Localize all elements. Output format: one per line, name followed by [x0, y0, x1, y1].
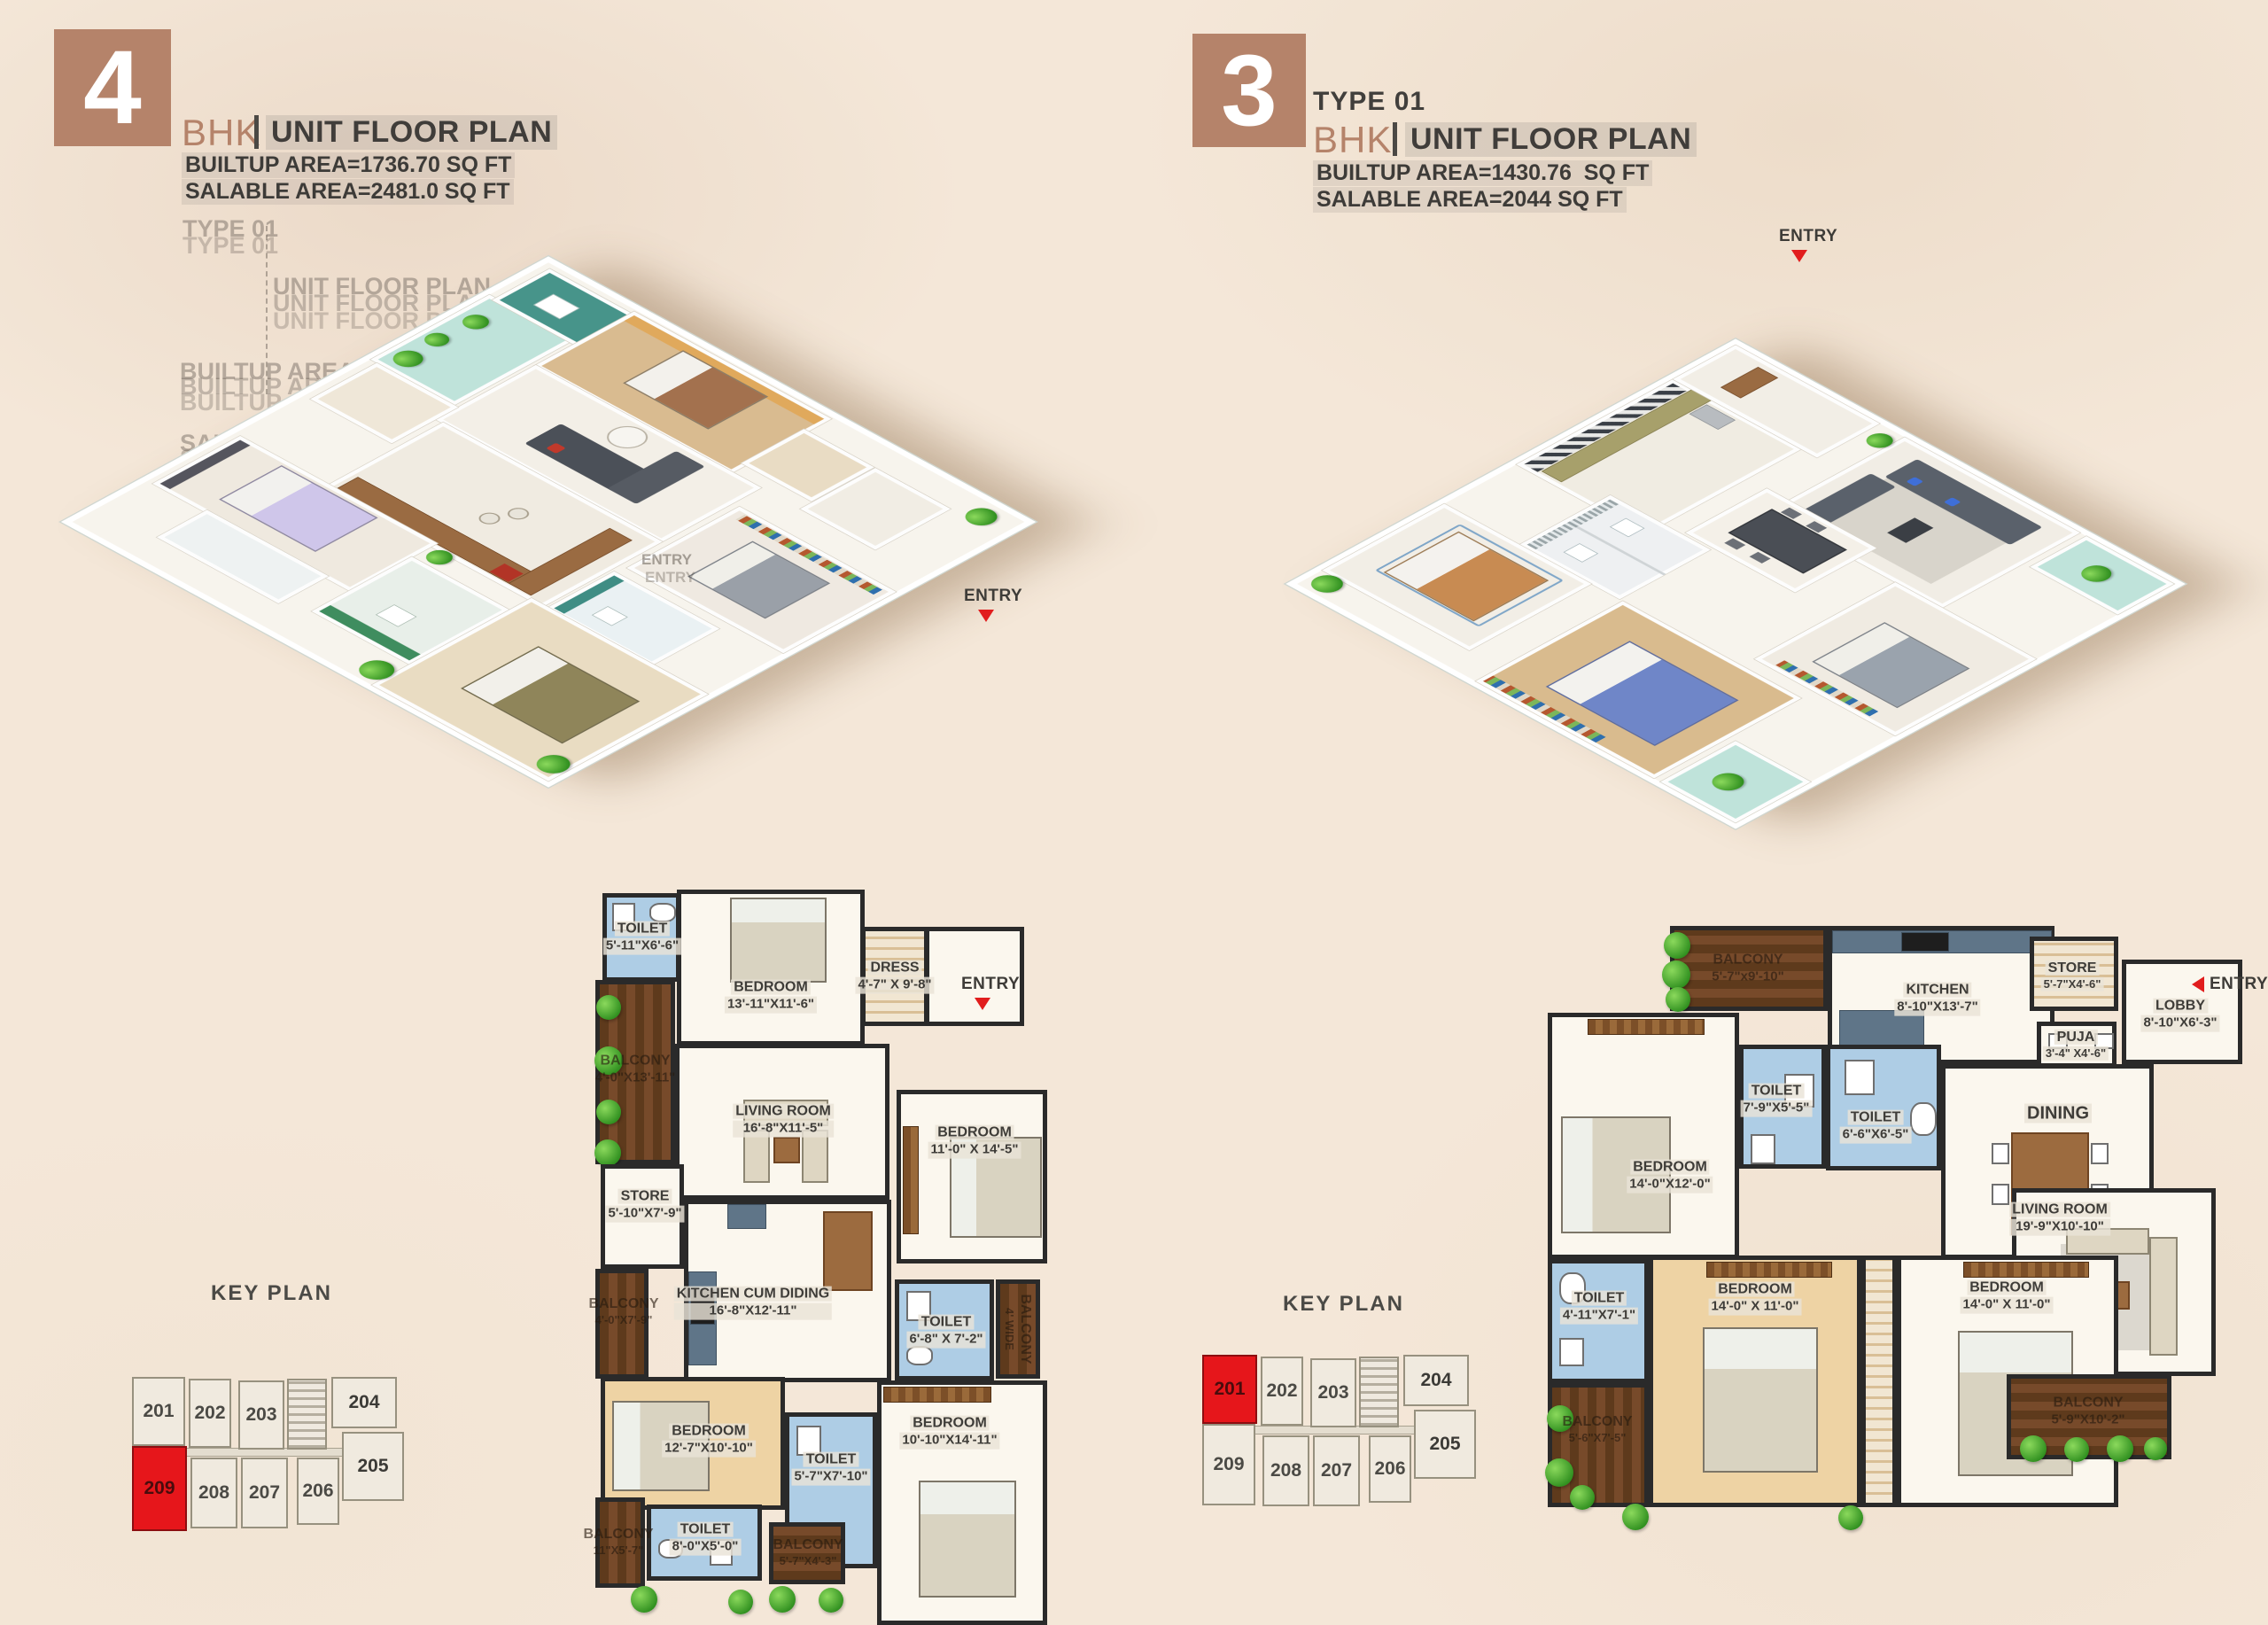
wc [592, 606, 628, 626]
keyplan-unit-203: 203 [1310, 1358, 1356, 1427]
plant-icon [769, 1586, 796, 1613]
room-name: TOILET [1848, 1110, 1904, 1125]
bar-stool [475, 510, 505, 526]
room-label: LIVING ROOM19'-9"X10'-10" [2009, 1201, 2110, 1236]
room-dims: 4'-7" X 9'-8" [855, 977, 934, 994]
room-dims: 5'-7"X4'-6" [2041, 977, 2104, 991]
wardrobe [1963, 1262, 2089, 1278]
room-dims: 12'-7"X10'-10" [662, 1441, 756, 1458]
kitchen-counter [1542, 389, 1713, 483]
plant-icon [1545, 1458, 1573, 1487]
room-bedroom [677, 890, 865, 1046]
room-label: TOILET6'-8" X 7'-2" [906, 1314, 985, 1349]
room-dims: 14'-0"X12'-0" [1627, 1177, 1713, 1193]
unit-number: 204 [1420, 1370, 1451, 1391]
plant-icon [2107, 1435, 2133, 1462]
room-label: TOILET6'-6"X6'-5" [1840, 1109, 1912, 1144]
wardrobe [1588, 1019, 1705, 1035]
bed [730, 898, 827, 983]
room-label: BALCONY5'-9"X10'-2" [2048, 1395, 2127, 1429]
room-dims: 6'-6"X6'-5" [1840, 1127, 1912, 1144]
bar-stool [503, 506, 533, 522]
room-dims: 5'-7"x9'-10" [1709, 969, 1786, 986]
keyplan-unit-209-highlighted: 209 [132, 1446, 187, 1531]
room-name: LIVING ROOM [733, 1104, 834, 1119]
left-3d-entry-label: ENTRY [964, 587, 1022, 606]
ghost-entry-label: ENTRY [641, 551, 692, 569]
room-name: BALCONY [2050, 1396, 2125, 1411]
room-label: BEDROOM10'-10"X14'-11" [899, 1415, 999, 1450]
room-label: TOILET7'-9"X5'-5" [1741, 1083, 1813, 1117]
left-keyplan-map: 201 202 203 204 205 206 207 208 209 [130, 1373, 405, 1533]
unit-number: 207 [249, 1482, 280, 1504]
room-name: LOBBY [2153, 999, 2208, 1014]
left-unit-number-badge: 4 [54, 29, 171, 146]
right-keyplan-map: 201 202 203 204 205 206 207 208 209 [1200, 1351, 1475, 1511]
plant-icon [594, 1139, 621, 1166]
room-name: TOILET [678, 1522, 734, 1537]
sofa [743, 1130, 770, 1183]
room-name: KITCHEN CUM DIDING [674, 1287, 832, 1302]
plant-icon [2020, 1435, 2047, 1462]
room-label: BEDROOM12'-7"X10'-10" [662, 1423, 756, 1458]
bed [461, 646, 640, 743]
curtain-wall [160, 440, 251, 489]
keyplan-unit-206: 206 [297, 1458, 339, 1525]
wardrobe [883, 1387, 991, 1403]
plant-icon [1664, 932, 1690, 959]
wc [1564, 543, 1599, 563]
right-salable-area: SALABLE AREA=2044 SQ FT [1313, 187, 1627, 213]
right-type-label: TYPE 01 [1313, 87, 1425, 117]
unit-number: 209 [1213, 1454, 1244, 1475]
keyplan-unit-203: 203 [238, 1380, 284, 1450]
room-name: PUJA [2054, 1030, 2098, 1045]
iso-bedroom-3 [1754, 582, 2036, 735]
wardrobe [903, 1126, 919, 1234]
keyplan-unit-208: 208 [190, 1458, 237, 1528]
plant-icon [1662, 960, 1690, 989]
room-name: DINING [2024, 1104, 2092, 1124]
plant-icon [1570, 1485, 1595, 1510]
room-label: BEDROOM13'-11"X11'-6" [725, 979, 817, 1014]
console-table [1720, 367, 1778, 398]
left-plan-entry-label: ENTRY [961, 975, 1020, 994]
iso-bedroom-1 [1322, 503, 1591, 650]
unit-number: 201 [1214, 1379, 1245, 1400]
room-name: BALCONY [1710, 952, 1785, 968]
right-plan-title: UNIT FLOOR PLAN [1405, 122, 1697, 157]
right-plan-entry-label: ENTRY [2210, 975, 2268, 994]
plant-icon [1622, 1504, 1649, 1530]
keyplan-unit-208: 208 [1262, 1435, 1309, 1506]
wc [1751, 1134, 1775, 1164]
room-name: STORE [618, 1189, 672, 1204]
room-dims: 4'-0"X7'-9" [586, 1313, 661, 1327]
unit-number: 207 [1321, 1460, 1352, 1481]
right-builtup-area: BUILTUP AREA=1430.76 SQ FT [1313, 160, 1652, 186]
plant-icon [959, 504, 1004, 529]
plant-icon [631, 1586, 657, 1613]
unit-number: 203 [1317, 1382, 1348, 1403]
unit-number: 201 [143, 1401, 174, 1422]
plant-icon [596, 995, 621, 1020]
room-label: DINING [2024, 1103, 2092, 1125]
keyplan-stairs [287, 1379, 327, 1450]
room-label: BALCONY4' WIDE [1002, 1291, 1034, 1366]
room-bedroom [1548, 1013, 1739, 1259]
keyplan-stairs [1359, 1357, 1399, 1427]
room-dims: 4'-11"X7'-1" [1560, 1308, 1638, 1325]
room-label: LOBBY8'-10"X6'-3" [2140, 998, 2219, 1032]
room-name: BALCONY [597, 1054, 672, 1069]
room-dims: 8'-10"X6'-3" [2140, 1015, 2219, 1032]
brochure-page: 4 BHK UNIT FLOOR PLAN BUILTUP AREA=1736.… [0, 0, 2268, 1625]
room-label: DRESS4'-7" X 9'-8" [855, 960, 934, 994]
room-label: TOILET8'-0"X5'-0" [670, 1521, 742, 1556]
ghost-entry-label: ENTRY [645, 569, 695, 587]
stove [1901, 932, 1949, 952]
plant-icon [2144, 1437, 2167, 1460]
unit-number: 206 [1374, 1458, 1405, 1480]
wc [1559, 1338, 1584, 1366]
room-label: KITCHEN CUM DIDING16'-8"X12'-11" [674, 1286, 832, 1320]
wardrobe-corridor [1861, 1256, 1897, 1507]
left-keyplan-title: KEY PLAN [211, 1281, 332, 1306]
sofa [2149, 1237, 2178, 1356]
keyplan-unit-202: 202 [1261, 1357, 1303, 1426]
room-label: PUJA3'-4" X4'-6" [2043, 1029, 2109, 1061]
room-label: LIVING ROOM16'-8"X11'-5" [733, 1103, 834, 1138]
right-unit-number-badge: 3 [1192, 34, 1306, 147]
chair [1992, 1143, 2009, 1164]
plant-icon [457, 312, 494, 332]
left-3d-render [62, 159, 1019, 868]
room-label: STORE5'-10"X7'-9" [605, 1188, 684, 1223]
bathtub [533, 294, 579, 319]
right-2d-floor-plan: BALCONY5'-7"x9'-10" KITCHEN8'-10"X13'-7"… [1546, 926, 2246, 1525]
room-dims: 3'-4" X4'-6" [2043, 1046, 2109, 1061]
room-name: TOILET [1749, 1084, 1805, 1099]
keyplan-unit-207: 207 [1313, 1435, 1360, 1506]
room-dims: 4'-0"X13'-11" [593, 1070, 679, 1087]
room-dims: 5'-11"X6'-6" [603, 938, 681, 955]
keyplan-unit-206: 206 [1369, 1435, 1411, 1503]
left-unit-number: 4 [83, 27, 142, 148]
room-dims: 5'-9"X10'-2" [2048, 1412, 2127, 1429]
bathtub [1910, 1102, 1937, 1136]
room-name: TOILET [615, 921, 671, 937]
plant-icon [2075, 562, 2117, 585]
unit-number: 203 [245, 1404, 276, 1426]
room-label: BALCONY4'-0"X13'-11" [593, 1053, 679, 1087]
room-dims: 4' WIDE [1002, 1291, 1016, 1366]
washbasin [906, 1346, 933, 1365]
room-dims: 5'-7"X7'-10" [791, 1469, 870, 1486]
room-dims: 14'-0" X 11'-0" [1961, 1297, 2054, 1314]
chevron-backsplash [1524, 384, 1687, 472]
room-name: TOILET [919, 1315, 975, 1330]
unit-number: 205 [1429, 1434, 1460, 1455]
plant-icon [2064, 1437, 2089, 1462]
plant-icon [596, 1100, 621, 1124]
unit-number: 206 [302, 1481, 333, 1502]
bed [919, 1481, 1016, 1598]
room-name: LIVING ROOM [2009, 1202, 2110, 1217]
room-dims: 16'-8"X11'-5" [733, 1121, 834, 1138]
wc [376, 604, 417, 626]
kitchen-counter [727, 1204, 766, 1229]
room-dims: 8'-0"X5'-0" [670, 1539, 742, 1556]
room-dims: 14'-0" X 11'-0" [1709, 1299, 1802, 1316]
room-label: BALCONY11"X5'-7" [580, 1526, 656, 1558]
room-dims: 10'-10"X14'-11" [899, 1433, 999, 1450]
room-dims: 13'-11"X11'-6" [725, 997, 817, 1014]
unit-number: 208 [1270, 1460, 1301, 1481]
keyplan-unit-205: 205 [1414, 1410, 1476, 1479]
room-label: BEDROOM14'-0" X 11'-0" [1709, 1281, 1802, 1316]
right-3d-floorplate [1285, 338, 2185, 828]
room-label: BALCONY5'-7"X4'-3" [770, 1536, 845, 1568]
plant-icon [819, 1588, 843, 1613]
room-name: BALCONY [1559, 1414, 1635, 1429]
room-name: BEDROOM [935, 1125, 1014, 1140]
room-dims: 6'-8" X 7'-2" [906, 1332, 985, 1349]
dining-table [823, 1211, 873, 1291]
room-label: BALCONY5'-7"x9'-10" [1709, 952, 1786, 986]
room-name: BEDROOM [731, 980, 811, 995]
room-label: BALCONY5'-6"X7'-5" [1559, 1413, 1635, 1445]
room-label: TOILET5'-7"X7'-10" [791, 1451, 870, 1486]
room-dims: 5'-10"X7'-9" [605, 1206, 684, 1223]
entry-arrow-icon [2192, 976, 2204, 992]
plant-icon [387, 347, 430, 370]
room-dims: 5'-6"X7'-5" [1559, 1431, 1635, 1445]
keyplan-unit-204: 204 [1403, 1355, 1469, 1406]
room-name: KITCHEN [1903, 983, 1971, 998]
room-name: BEDROOM [910, 1416, 990, 1431]
washbasin [1610, 518, 1645, 538]
right-3d-entry-label: ENTRY [1779, 227, 1837, 246]
room-label: STORE5'-7"X4'-6" [2041, 960, 2104, 991]
room-name: DRESS [867, 960, 921, 976]
sofa [802, 1130, 828, 1183]
room-dims: 19'-9"X10'-10" [2009, 1219, 2110, 1236]
plant-icon [419, 330, 454, 350]
bed [623, 350, 768, 429]
right-unit-number: 3 [1221, 33, 1277, 149]
chair [1992, 1184, 2009, 1205]
room-name: BALCONY [586, 1296, 661, 1311]
unit-number: 202 [194, 1403, 225, 1424]
plant-icon [1666, 987, 1690, 1012]
keyplan-unit-207: 207 [241, 1458, 288, 1528]
room-dims: 5'-7"X4'-3" [770, 1554, 845, 1568]
room-label: BEDROOM14'-0"X12'-0" [1627, 1159, 1713, 1193]
room-label: TOILET5'-11"X6'-6" [603, 921, 681, 955]
room-name: BEDROOM [1630, 1160, 1710, 1175]
room-bedroom [897, 1090, 1047, 1263]
entry-arrow-icon [978, 610, 994, 622]
keyplan-unit-201-highlighted: 201 [1202, 1355, 1257, 1424]
unit-number: 205 [357, 1456, 388, 1477]
plant-icon [1705, 770, 1751, 795]
plant-icon [1838, 1505, 1863, 1530]
wardrobe [1706, 1262, 1832, 1278]
room-label: BALCONY4'-0"X7'-9" [586, 1295, 661, 1327]
room-name: TOILET [1572, 1291, 1627, 1306]
room-name: BEDROOM [1715, 1282, 1795, 1297]
left-3d-floorplate [61, 256, 1036, 787]
right-bhk-label: BHK [1313, 119, 1392, 161]
left-bhk-label: BHK [182, 112, 260, 154]
room-name: BEDROOM [1967, 1280, 2047, 1295]
right-3d-render [1285, 257, 2171, 930]
room-name: STORE [2046, 960, 2100, 976]
room-dims: 8'-10"X13'-7" [1894, 999, 1980, 1016]
room-name: TOILET [804, 1452, 859, 1467]
entry-arrow-icon [975, 998, 990, 1010]
washbasin [1845, 1060, 1875, 1095]
keyplan-unit-201: 201 [132, 1377, 185, 1446]
chair [2091, 1143, 2109, 1164]
room-dims: 11"X5'-7" [580, 1543, 656, 1558]
room-dims: 16'-8"X12'-11" [674, 1303, 832, 1320]
room-name: BALCONY [770, 1537, 845, 1552]
unit-number: 204 [348, 1392, 379, 1413]
keyplan-unit-204: 204 [331, 1377, 397, 1428]
coffee-table [773, 1137, 800, 1163]
right-keyplan-title: KEY PLAN [1283, 1292, 1404, 1317]
room-label: BEDROOM11'-0" X 14'-5" [928, 1124, 1021, 1159]
unit-number: 208 [198, 1482, 229, 1504]
room-dims: 7'-9"X5'-5" [1741, 1100, 1813, 1117]
room-label: TOILET4'-11"X7'-1" [1560, 1290, 1638, 1325]
room-name: BALCONY [580, 1527, 656, 1542]
room-label: KITCHEN8'-10"X13'-7" [1894, 982, 1980, 1016]
header-divider [254, 115, 259, 149]
keyplan-unit-202: 202 [189, 1379, 231, 1448]
unit-number: 209 [144, 1478, 175, 1499]
bed [1703, 1327, 1818, 1473]
room-name: BALCONY [1018, 1291, 1033, 1366]
keyplan-unit-209: 209 [1202, 1424, 1255, 1505]
keyplan-unit-205: 205 [342, 1432, 404, 1501]
room-name: BEDROOM [669, 1424, 749, 1439]
plant-icon [728, 1590, 753, 1614]
room-toilet [1826, 1045, 1941, 1170]
unit-number: 202 [1266, 1380, 1297, 1402]
header-divider [1393, 122, 1397, 156]
left-plan-title: UNIT FLOOR PLAN [266, 115, 557, 150]
room-dims: 11'-0" X 14'-5" [928, 1142, 1021, 1159]
room-label: BEDROOM14'-0" X 11'-0" [1961, 1279, 2054, 1314]
